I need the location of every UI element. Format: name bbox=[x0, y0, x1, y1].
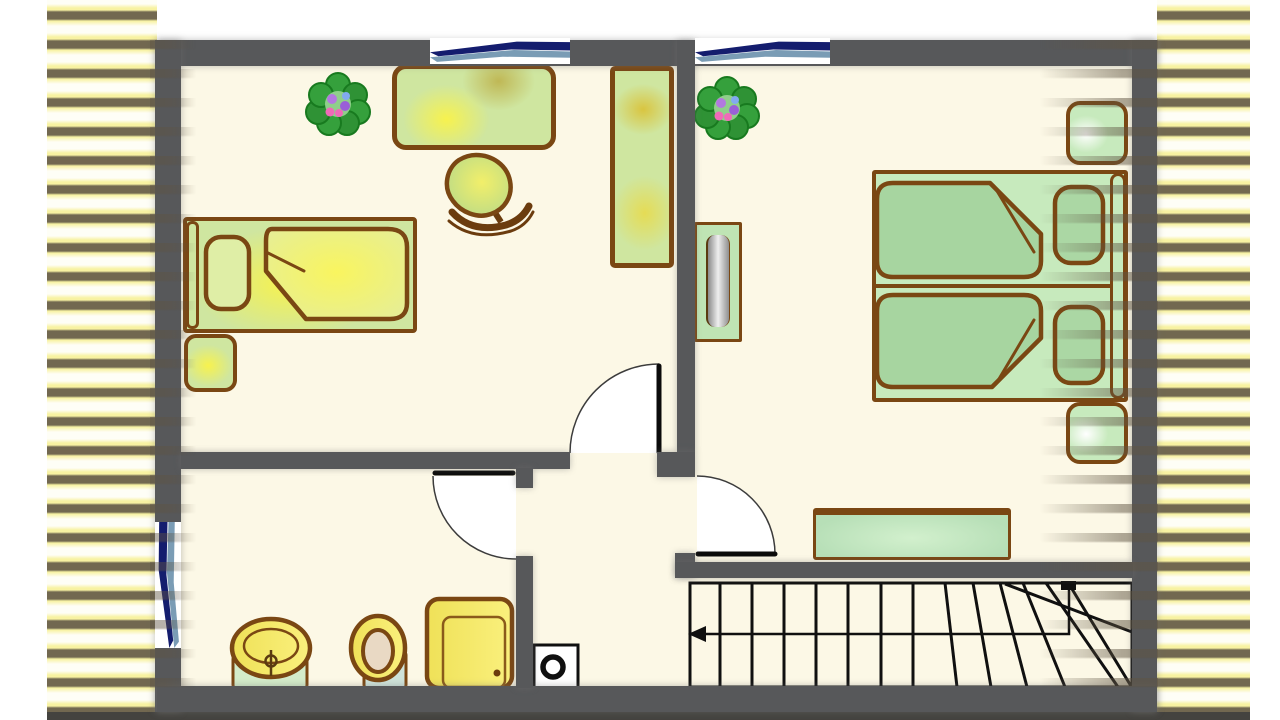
wardrobe bbox=[610, 66, 674, 268]
stairwell-wall bbox=[675, 562, 1133, 578]
single-bed bbox=[183, 217, 417, 333]
bathroom-door-jamb bbox=[516, 468, 533, 488]
mirror-commode bbox=[694, 222, 742, 342]
hatched-roof-border-left bbox=[47, 0, 157, 712]
hatched-roof-border-right bbox=[1157, 0, 1250, 712]
exterior-wall-right bbox=[1132, 40, 1157, 712]
bench-chest bbox=[813, 508, 1011, 560]
partition-wall-middle-foot bbox=[657, 452, 695, 477]
bedside-table bbox=[184, 334, 237, 392]
window bbox=[155, 522, 181, 648]
exterior-wall-top bbox=[157, 40, 1157, 66]
desk bbox=[392, 64, 556, 150]
partition-wall-bathroom-top bbox=[181, 452, 570, 469]
double-bed bbox=[872, 170, 1128, 402]
window bbox=[430, 38, 570, 64]
double-bed-headboard bbox=[1110, 173, 1126, 399]
partition-wall-middle bbox=[677, 40, 695, 452]
partition-wall-bathroom-side bbox=[516, 556, 533, 688]
bottom-edge-strip bbox=[47, 712, 1250, 720]
window bbox=[695, 38, 830, 64]
mirror-glass bbox=[706, 235, 730, 327]
floor-plan bbox=[0, 0, 1280, 720]
nightstand-upper bbox=[1066, 101, 1128, 165]
nightstand-lower bbox=[1066, 402, 1128, 464]
exterior-wall-bottom bbox=[157, 686, 1157, 712]
single-bed-headboard bbox=[186, 221, 199, 329]
